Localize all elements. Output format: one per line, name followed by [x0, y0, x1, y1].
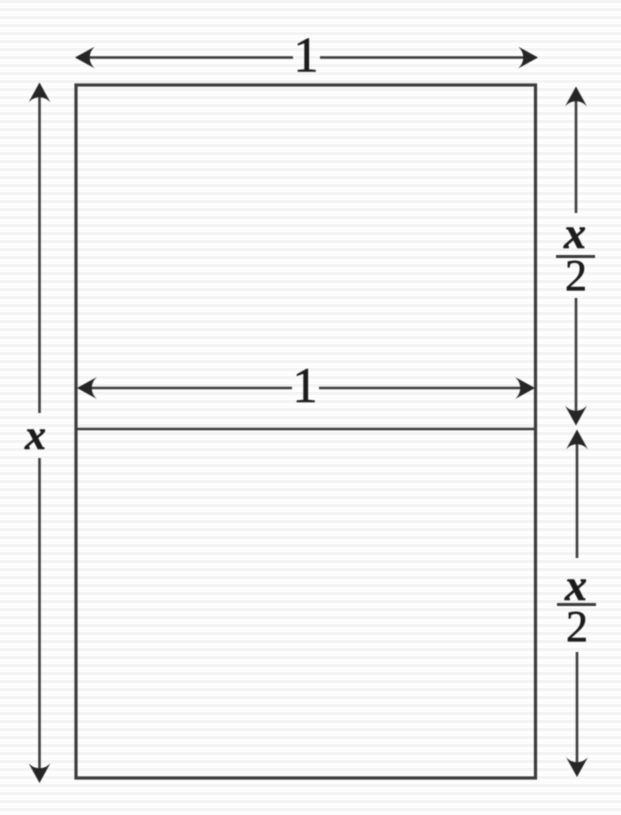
svg-text:1: 1	[293, 357, 318, 413]
svg-text:2: 2	[566, 602, 588, 651]
svg-text:1: 1	[294, 27, 319, 83]
svg-text:x: x	[24, 413, 46, 459]
svg-text:2: 2	[565, 251, 587, 300]
